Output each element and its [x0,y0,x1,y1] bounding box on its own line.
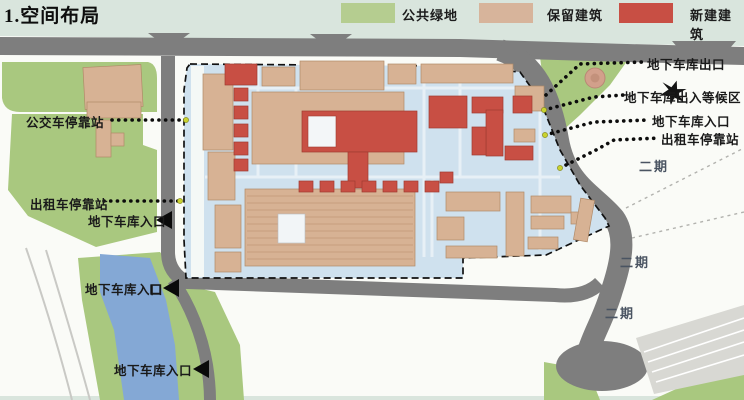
site-plan-map [0,0,744,400]
legend-swatch-retained [479,3,533,23]
legend-label-green: 公共绿地 [402,5,458,24]
legend-swatch-new [619,3,673,23]
label-garage-entrance-right: 地下车库入口 [652,111,730,130]
page-title: 1.空间布局 [4,1,100,28]
label-phase2-3: 二期 [605,303,635,322]
site-west-strip [191,66,204,277]
tree-icon [585,68,605,88]
legend-label-new: 新建建筑 [690,5,744,43]
label-phase2-2: 二期 [620,252,650,271]
legend-swatch-green [341,3,395,23]
label-garage-waiting-area: 地下车库出入等候区 [624,87,741,106]
label-garage-entrance-2: 地下车库入口 [85,279,163,298]
site-plan-figure: 1.空间布局 公共绿地 保留建筑 新建建筑 公交车停靠站 出租车停靠站 地下车库… [0,0,744,400]
label-garage-exit: 地下车库出口 [647,54,725,73]
label-garage-entrance-1: 地下车库入口 [88,211,166,230]
legend-label-retained: 保留建筑 [547,5,603,24]
label-phase2-1: 二期 [639,156,669,175]
road-junction [556,341,648,391]
label-bus-stop-left: 公交车停靠站 [26,112,104,131]
new-building-courtyard [308,116,336,147]
factory-courtyard [278,214,305,243]
label-taxi-stop-right: 出租车停靠站 [661,129,739,148]
label-garage-entrance-3: 地下车库入口 [114,360,192,379]
